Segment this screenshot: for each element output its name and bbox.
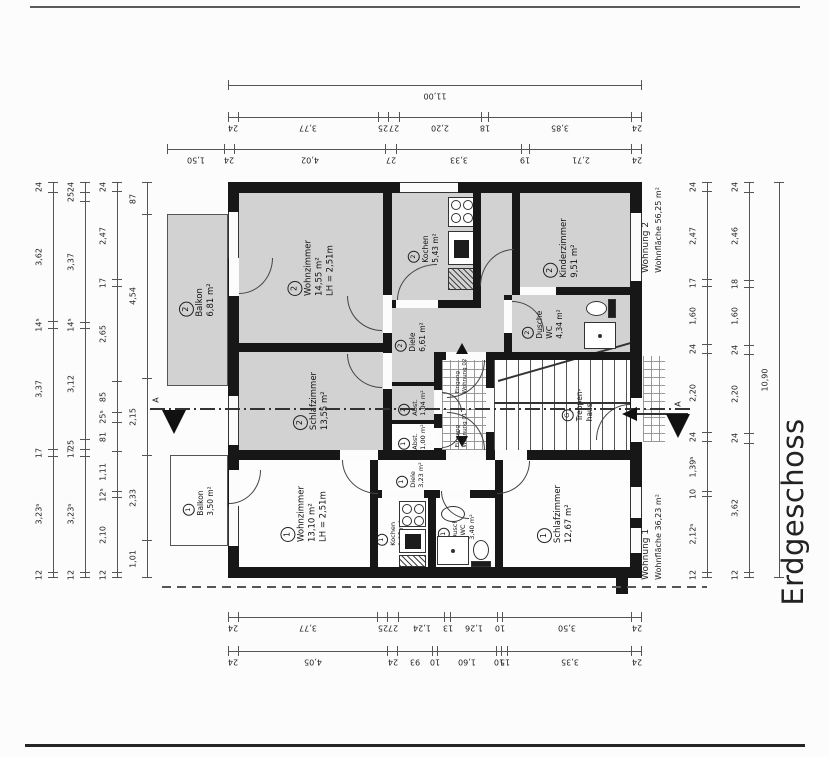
dimension-chain-bottom-row1: 243,7725271,24131,26103,5024 [228, 612, 642, 622]
room-label: 2 Kinderzimmer 9,51 m² [543, 218, 581, 278]
section-line-a-a [150, 408, 690, 410]
door-gap-balcony-w2 [229, 258, 239, 296]
dimension-segment: 2,47 [702, 191, 712, 279]
wall-interior [239, 343, 383, 352]
door-gap [520, 287, 556, 295]
dimension-segment: 12 [744, 572, 754, 578]
wall-partition [392, 382, 434, 386]
door-gap [383, 295, 392, 333]
shower-tray [584, 322, 616, 349]
entrance-direction-arrow-up [456, 343, 468, 354]
dimension-segment: 12 [702, 572, 712, 578]
dimension-chain-left-4: 874,542,152,331,01 [142, 182, 152, 578]
dimension-segment: 93 [397, 646, 432, 656]
dimension-segment: 3,37 [48, 328, 58, 449]
room-label: 1 Balkon 3,50 m² [183, 486, 216, 515]
dimension-segment: 1,60 [744, 287, 754, 345]
dimension-segment: 24 [744, 182, 754, 192]
dimension-segment: 2,65 [112, 286, 122, 380]
dimension-segment: 27 [388, 112, 399, 122]
door-gap [434, 428, 442, 448]
unit-number-badge: 2 [178, 302, 193, 317]
section-marker-triangle [162, 410, 186, 434]
entrance-label-w2: Eingang Wohnung 02 [455, 359, 469, 394]
wall-interior [428, 498, 436, 567]
dimension-segment: 3,77 [238, 112, 378, 122]
unit-number-badge: 1 [396, 476, 408, 488]
dimension-chain-left-1: 243,6214⁵3,37173,23⁵12 [48, 182, 58, 578]
dimension-segment: 25⁵ [112, 412, 122, 422]
shower-tray [437, 536, 469, 565]
dimension-segment: 3,50 [502, 612, 631, 622]
window [228, 212, 239, 258]
section-marker-label: A [674, 401, 683, 406]
scan-artifact-line [25, 744, 805, 747]
dimension-segment: 24 [702, 182, 712, 191]
dimension-segment: 1,01 [142, 540, 152, 578]
dimension-segment: 2,15 [142, 378, 152, 456]
dimension-segment: 3,85 [488, 112, 631, 122]
room-kinderzimmer-w2: 2 Kinderzimmer 9,51 m² [520, 193, 630, 287]
dimension-segment: 24 [387, 646, 397, 656]
dimension-segment: 2,46 [744, 192, 754, 280]
stove-burners [399, 501, 426, 527]
dimension-segment: 17 [80, 449, 90, 456]
room-label: 1 Diele 3,23 m² [396, 462, 426, 487]
door-gap [504, 300, 512, 333]
toilet [473, 540, 489, 560]
room-label: 1 Schlafzimmer 12,67 m² [537, 484, 575, 542]
unit-number-badge: 1 [280, 527, 295, 542]
dimension-chain-top-overall: 11,00 [228, 80, 642, 90]
dimension-segment: 12 [112, 572, 122, 578]
dimension-segment: 18 [744, 280, 754, 287]
dimension-segment: 24 [631, 144, 642, 154]
dimension-segment: 25 [80, 192, 90, 202]
dimension-segment: 2,10 [112, 497, 122, 572]
apartment-label-w1: Wohnung 1 Wohnfläche 36,23 m² [640, 494, 664, 580]
floor-title: Erdgeschoss [776, 418, 810, 605]
kitchen-cabinet-hatch [448, 268, 474, 290]
unit-number-badge: 1 [398, 438, 410, 450]
unit-number-badge: G [562, 409, 574, 421]
dimension-segment: 24 [744, 433, 754, 443]
dimension-segment: 17 [702, 279, 712, 286]
unit-number-badge: 2 [407, 251, 419, 263]
room-label: 2 Abst. 1,04 m² [398, 390, 428, 415]
dimension-segment: 2,20 [702, 353, 712, 432]
dimension-segment: 2,12⁵ [702, 496, 712, 572]
dimension-chain-left-3: 242,47172,658525⁵811,1112⁵2,1012 [112, 182, 122, 578]
wall-apartment-divider [228, 450, 630, 460]
dimension-segment: 1,60 [437, 646, 497, 656]
window [228, 396, 239, 445]
wall-interior [486, 360, 494, 388]
dimension-segment: 17 [112, 279, 122, 286]
dimension-segment: 4,54 [142, 214, 152, 377]
dimension-segment: 1,24 [398, 612, 444, 622]
dimension-segment: 24 [228, 112, 238, 122]
dimension-segment: 11,00 [228, 80, 642, 90]
dimension-segment: 2,47 [112, 191, 122, 279]
building-entrance-arrow [622, 407, 637, 421]
dimension-segment: 24 [744, 345, 754, 355]
room-label: 2 Kochen 5,43 m² [407, 233, 440, 262]
wall-partition [392, 420, 434, 424]
boundary-dashed-line [162, 586, 707, 588]
door-gap [383, 353, 392, 389]
dimension-segment: 4,02 [234, 144, 385, 154]
room-label: 2 Schlafzimmer 13,55 m² [293, 372, 331, 430]
dimension-segment: 2,71 [529, 144, 631, 154]
unit-number-badge: 2 [543, 262, 558, 277]
dimension-segment: 1,26 [450, 612, 497, 622]
dimension-segment: 25 [80, 439, 90, 449]
unit-number-badge: 1 [183, 503, 195, 515]
wall-bottom [228, 567, 642, 578]
dimension-segment: 1,39⁵ [702, 441, 712, 491]
dimension-segment: 3,23⁵ [48, 456, 58, 572]
apartment-label-w2: Wohnung 2 Wohnfläche 56,25 m² [640, 187, 664, 273]
dimension-segment: 3,33 [396, 144, 521, 154]
room-abstellraum-w1: 1 Abst. 1,00 m² [392, 424, 434, 450]
dimension-segment: 3,77 [238, 612, 377, 622]
dimension-segment: 3,62 [744, 443, 754, 572]
room-label: 2 Balkon 6,81 m² [178, 283, 216, 316]
entrance-label-w1: Eingang Wohnung 01 [455, 413, 469, 448]
door-gap [434, 390, 442, 414]
section-marker-triangle [666, 414, 690, 438]
door-gap [382, 490, 424, 498]
dimension-segment: 24 [228, 646, 238, 656]
dimension-segment: 2,33 [142, 455, 152, 539]
kitchen-cabinet-hatch [399, 555, 426, 567]
dimension-segment: 24 [228, 612, 238, 622]
dimension-chain-right-2: 242,46181,60242,20243,6212 [744, 182, 754, 578]
dimension-chain-bottom-row2: 244,052493101,6010153,3524 [228, 646, 642, 656]
toilet-tank [608, 299, 616, 318]
dimension-segment: 24 [631, 646, 642, 656]
room-label: G Treppen- haus [562, 389, 595, 422]
unit-number-badge: 2 [395, 339, 407, 351]
room-abstellraum-w2: 2 Abst. 1,04 m² [392, 386, 434, 420]
door-gap [446, 450, 486, 460]
toilet [586, 301, 607, 316]
dimension-segment: 25 [377, 612, 387, 622]
dimension-segment: 1,50 [167, 144, 224, 154]
dimension-segment: 27 [387, 612, 398, 622]
dimension-segment: 1,11 [112, 451, 122, 491]
balcony-w1: 1 Balkon 3,50 m² [170, 455, 228, 546]
dimension-segment: 24 [112, 182, 122, 191]
dimension-segment: 3,23⁵ [80, 456, 90, 572]
unit-number-badge: 2 [293, 415, 308, 430]
room-label: 1 Wohnzimmer 13,10 m² LH = 2,51m [280, 486, 329, 542]
dimension-segment: 4,05 [238, 646, 387, 656]
window [400, 182, 458, 193]
dimension-segment: 81 [112, 422, 122, 452]
dimension-segment: 3,12 [80, 328, 90, 439]
wall-interior [486, 432, 494, 450]
dimension-segment: 18 [481, 112, 489, 122]
dimension-segment: 24 [224, 144, 234, 154]
dimension-chain-top-row2: 243,7725272,20183,8524 [228, 112, 642, 122]
dimension-segment: 17 [48, 449, 58, 456]
door-gap [340, 450, 378, 460]
dimension-chain-left-2: 24253,3714⁵3,1225173,23⁵12 [80, 182, 90, 578]
dimension-segment: 87 [142, 182, 152, 214]
door-gap [396, 300, 438, 308]
dimension-segment: 24 [702, 432, 712, 441]
scan-artifact-line [30, 6, 800, 8]
stair-divider-line [494, 402, 630, 404]
stove-burners [448, 197, 474, 227]
unit-number-badge: 1 [537, 528, 552, 543]
dimension-segment: 2,20 [744, 354, 754, 433]
dimension-segment: 27 [385, 144, 396, 154]
balcony-w2: 2 Balkon 6,81 m² [167, 214, 228, 386]
kitchen-sink [399, 529, 426, 553]
dimension-segment: 3,62 [48, 192, 58, 322]
unit-number-badge: 2 [287, 281, 302, 296]
dimension-segment: 2,20 [399, 112, 481, 122]
dimension-segment: 12 [48, 572, 58, 578]
dimension-segment: 24 [702, 344, 712, 353]
dimension-segment: 25 [378, 112, 388, 122]
section-marker-label: A [152, 397, 161, 402]
dimension-segment: 24 [631, 612, 642, 622]
dimension-segment: 85 [112, 381, 122, 412]
room-label: 2 Wohnzimmer 14,55 m² LH = 2,51m [287, 240, 336, 296]
dimension-segment: 24 [80, 182, 90, 192]
entrance-pad-tiles [643, 356, 665, 442]
dimension-segment: 12 [80, 572, 90, 578]
floor-plan: 2 Wohnzimmer 14,55 m² LH = 2,51m 2 Schla… [0, 0, 829, 757]
door-gap [495, 450, 527, 460]
dimension-chain-right-1: 242,47171,60242,20241,39⁵102,12⁵12 [702, 182, 712, 578]
room-diele-w1: 1 Diele 3,23 m² [378, 460, 495, 490]
dimension-segment: 3,37 [80, 201, 90, 321]
dimension-segment: 24 [631, 112, 642, 122]
dimension-segment: 1,60 [702, 286, 712, 343]
dimension-chain-top-row3: 1,50244,02273,33192,7124 [167, 144, 642, 154]
dimension-segment: 3,35 [507, 646, 631, 656]
window [228, 506, 239, 546]
room-label: 1 Abst. 1,00 m² [398, 424, 428, 449]
dimension-segment: 24 [48, 182, 58, 192]
kitchen-sink [448, 231, 474, 265]
dimension-segment: 19 [521, 144, 529, 154]
room-label: 2 Diele 6,61 m² [395, 322, 428, 351]
